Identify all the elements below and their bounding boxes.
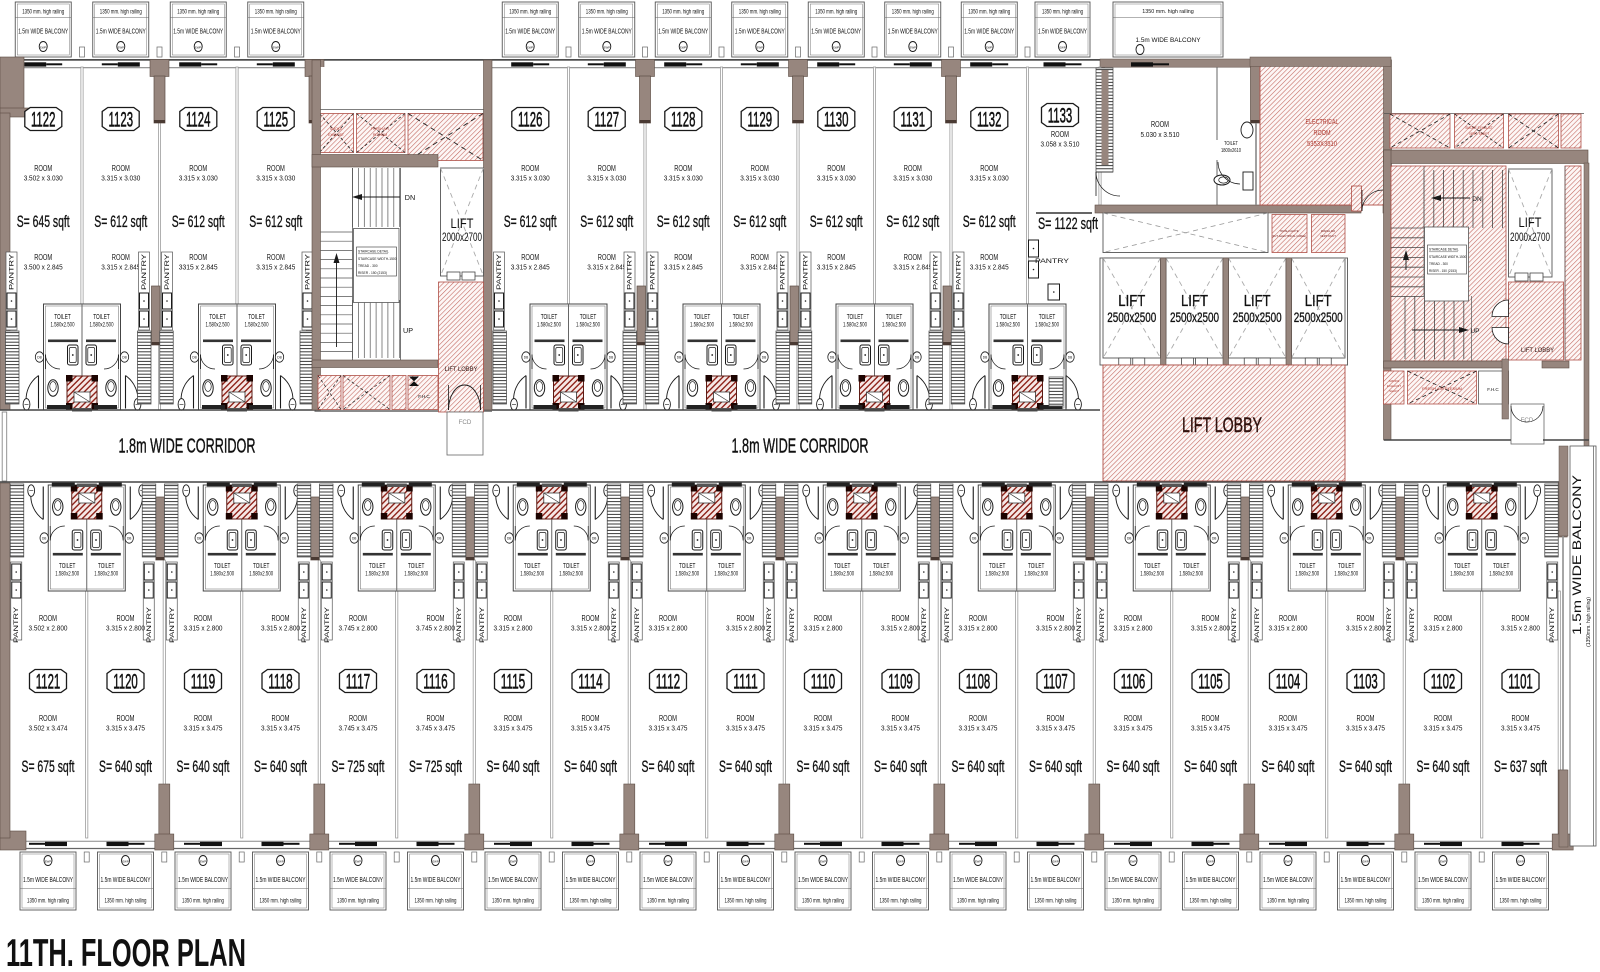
svg-text:ROOM: ROOM [272, 713, 290, 723]
svg-text:S= 640 sqft: S= 640 sqft [1107, 758, 1160, 776]
svg-text:1.580x2.500: 1.580x2.500 [210, 572, 234, 578]
svg-text:1108: 1108 [966, 670, 991, 693]
svg-text:STAIRCASE DETAIL: STAIRCASE DETAIL [358, 250, 389, 254]
svg-text:3.315 x 3.475: 3.315 x 3.475 [1501, 724, 1540, 733]
svg-text:LIFT: LIFT [1181, 293, 1208, 310]
svg-text:1.580x2.500: 1.580x2.500 [830, 572, 854, 578]
svg-text:1.5m WIDE BALCONY: 1.5m WIDE BALCONY [1038, 27, 1087, 36]
svg-text:1350 mm. high railing: 1350 mm. high railing [1142, 9, 1194, 15]
svg-text:PANTRY: PANTRY [780, 253, 787, 290]
svg-text:5.030 x 3.510: 5.030 x 3.510 [1141, 130, 1180, 139]
svg-text:1800x2610: 1800x2610 [1221, 148, 1241, 154]
svg-text:EWP: EWP [1285, 860, 1292, 864]
svg-text:3.315 x 3.475: 3.315 x 3.475 [1424, 724, 1463, 733]
svg-text:3.315 x 2.800: 3.315 x 2.800 [1269, 624, 1308, 633]
svg-text:TOILET: TOILET [93, 314, 110, 321]
svg-text:1105: 1105 [1198, 670, 1223, 693]
svg-text:3.500 x 2.845: 3.500 x 2.845 [24, 263, 63, 272]
svg-text:TOILET: TOILET [1000, 314, 1017, 321]
svg-text:3.315 x 3.475: 3.315 x 3.475 [1114, 724, 1153, 733]
svg-text:1102: 1102 [1431, 670, 1456, 693]
svg-text:ROOM: ROOM [521, 163, 539, 173]
svg-text:1.580x2.500: 1.580x2.500 [869, 572, 893, 578]
svg-text:3.315 x 3.475: 3.315 x 3.475 [494, 724, 533, 733]
svg-text:1350 mm. high railing: 1350 mm. high railing [725, 898, 767, 905]
svg-text:1.580x2.500: 1.580x2.500 [404, 572, 428, 578]
svg-text:PANTRY: PANTRY [1076, 606, 1083, 643]
svg-text:EWP: EWP [820, 860, 827, 864]
svg-text:1.5m WIDE BALCONY: 1.5m WIDE BALCONY [964, 27, 1014, 36]
svg-text:3.315 x 2.800: 3.315 x 2.800 [1114, 624, 1153, 633]
svg-text:TOILET: TOILET [694, 314, 711, 321]
svg-text:FRESH AIR PLENUM: FRESH AIR PLENUM [1422, 387, 1462, 391]
svg-text:LIFT: LIFT [1519, 215, 1542, 230]
svg-text:DB: DB [1282, 537, 1286, 541]
svg-text:1.580x2.500: 1.580x2.500 [882, 323, 906, 329]
svg-text:S= 612 sqft: S= 612 sqft [94, 213, 147, 231]
svg-text:1.5m WIDE BALCONY: 1.5m WIDE BALCONY [1572, 475, 1584, 635]
svg-text:TOILET: TOILET [886, 314, 903, 321]
svg-text:ROOM: ROOM [189, 163, 207, 173]
svg-text:S= 640 sqft: S= 640 sqft [1262, 758, 1315, 776]
svg-text:EWP: EWP [897, 860, 904, 864]
svg-text:1128: 1128 [671, 108, 696, 131]
svg-text:1.580x2.500: 1.580x2.500 [249, 572, 273, 578]
svg-text:STAIRCASE DETAIL: STAIRCASE DETAIL [1429, 248, 1459, 252]
svg-text:1121: 1121 [36, 670, 61, 693]
svg-text:EWP: EWP [355, 860, 362, 864]
svg-text:SMOKE: SMOKE [1389, 379, 1400, 383]
svg-text:TOILET: TOILET [989, 563, 1006, 570]
svg-text:EWP: EWP [1517, 860, 1524, 864]
svg-text:3.315 x 3.475: 3.315 x 3.475 [184, 724, 223, 733]
svg-text:1.580x2.500: 1.580x2.500 [843, 323, 867, 329]
svg-text:LIFT: LIFT [1118, 293, 1145, 310]
svg-text:S= 612 sqft: S= 612 sqft [657, 213, 710, 231]
svg-text:3.315 x 2.845: 3.315 x 2.845 [511, 263, 550, 272]
svg-text:S= 640 sqft: S= 640 sqft [874, 758, 927, 776]
svg-text:3.315 x 3.030: 3.315 x 3.030 [511, 174, 550, 183]
svg-text:DB: DB [747, 537, 751, 541]
svg-text:ROOM: ROOM [751, 163, 769, 173]
svg-text:3.315 x 3.475: 3.315 x 3.475 [1191, 724, 1230, 733]
svg-text:3.315 x 3.030: 3.315 x 3.030 [664, 174, 703, 183]
svg-text:TOILET: TOILET [369, 563, 386, 570]
svg-text:S= 640 sqft: S= 640 sqft [1184, 758, 1237, 776]
svg-text:(FUT. ELECTRICAL CABLE): (FUT. ELECTRICAL CABLE) [1272, 234, 1306, 238]
svg-text:TOILET: TOILET [1039, 314, 1056, 321]
svg-text:PANTRY: PANTRY [1099, 606, 1106, 643]
svg-text:ROOM: ROOM [194, 613, 212, 623]
svg-text:1350 mm. high railing: 1350 mm. high railing [586, 9, 628, 16]
svg-text:3.315 x 2.845: 3.315 x 2.845 [970, 263, 1009, 272]
svg-text:1350 mm. high railing: 1350 mm. high railing [492, 898, 534, 905]
svg-text:TREAD - 300: TREAD - 300 [1429, 262, 1448, 266]
svg-text:3.315 x 3.475: 3.315 x 3.475 [1269, 724, 1308, 733]
svg-text:ROOM: ROOM [659, 713, 677, 723]
svg-text:3.315 x 2.800: 3.315 x 2.800 [106, 624, 145, 633]
svg-text:1350 mm. high railing: 1350 mm. high railing [957, 898, 999, 905]
svg-text:1.5m WIDE BALCONY: 1.5m WIDE BALCONY [1136, 37, 1202, 44]
svg-text:3.315 x 2.845: 3.315 x 2.845 [256, 263, 295, 272]
svg-text:1350 mm. high railing: 1350 mm. high railing [509, 9, 551, 16]
svg-text:DN: DN [1472, 196, 1482, 203]
svg-text:ROOM: ROOM [194, 713, 212, 723]
svg-text:EWP: EWP [986, 46, 993, 50]
svg-text:TOILET: TOILET [1224, 141, 1238, 147]
svg-text:ROOM: ROOM [117, 713, 135, 723]
svg-text:1.580x2.500: 1.580x2.500 [51, 323, 75, 329]
svg-text:DB: DB [817, 537, 821, 541]
svg-text:3.315 x 3.475: 3.315 x 3.475 [804, 724, 843, 733]
svg-text:TOILET: TOILET [1493, 563, 1510, 570]
svg-text:ROOM: ROOM [349, 613, 367, 623]
svg-text:3.315 x 3.030: 3.315 x 3.030 [101, 174, 140, 183]
svg-text:TOILET: TOILET [1028, 563, 1045, 570]
svg-text:S= 725 sqft: S= 725 sqft [409, 758, 462, 776]
svg-text:3.315 x 2.800: 3.315 x 2.800 [1036, 624, 1075, 633]
svg-text:3.745 x 3.475: 3.745 x 3.475 [416, 724, 455, 733]
svg-text:FCD: FCD [1521, 417, 1534, 424]
svg-text:1350 mm. high railing: 1350 mm. high railing [647, 898, 689, 905]
svg-text:DB: DB [277, 356, 281, 360]
svg-text:LIFT LOBBY: LIFT LOBBY [1521, 347, 1555, 354]
svg-text:S= 640 sqft: S= 640 sqft [177, 758, 230, 776]
svg-text:EWP: EWP [118, 46, 125, 50]
svg-text:ROOM: ROOM [1314, 128, 1331, 137]
svg-text:1104: 1104 [1276, 670, 1301, 693]
svg-text:3.315 x 2.800: 3.315 x 2.800 [1346, 624, 1385, 633]
svg-text:ROOM: ROOM [827, 163, 845, 173]
svg-text:ROOM: ROOM [189, 252, 207, 262]
svg-text:3.315 x 3.475: 3.315 x 3.475 [726, 724, 765, 733]
svg-text:3.315 x 2.800: 3.315 x 2.800 [1191, 624, 1230, 633]
svg-text:STAIRCASE WIDTH-1500: STAIRCASE WIDTH-1500 [1429, 255, 1467, 259]
svg-text:PANTRY: PANTRY [803, 253, 810, 290]
svg-text:ROOM: ROOM [1124, 613, 1142, 623]
svg-text:1.5m WIDE BALCONY: 1.5m WIDE BALCONY [333, 875, 383, 884]
svg-text:1133: 1133 [1048, 104, 1073, 127]
svg-text:S= 612 sqft: S= 612 sqft [580, 213, 633, 231]
svg-text:EWP: EWP [1207, 860, 1214, 864]
svg-text:DB: DB [609, 356, 613, 360]
svg-text:ROOM: ROOM [1434, 713, 1452, 723]
svg-text:1125: 1125 [264, 108, 289, 131]
svg-text:EWP: EWP [665, 860, 672, 864]
svg-text:2500x2500: 2500x2500 [1294, 309, 1343, 325]
svg-text:PANTRY: PANTRY [650, 253, 657, 290]
svg-text:1.580x2.500: 1.580x2.500 [576, 323, 600, 329]
svg-text:1350 mm. high railing: 1350 mm. high railing [662, 9, 704, 16]
svg-text:EWP: EWP [742, 860, 749, 864]
svg-text:ROOM: ROOM [1124, 713, 1142, 723]
svg-text:3.745 x 2.800: 3.745 x 2.800 [339, 624, 378, 633]
svg-text:1350 mm. high railing: 1350 mm. high railing [739, 9, 781, 16]
svg-text:EWP: EWP [1130, 860, 1137, 864]
svg-text:RISER - 150 (2153): RISER - 150 (2153) [1429, 269, 1457, 273]
svg-text:EWP: EWP [45, 860, 52, 864]
svg-text:TOILET: TOILET [214, 563, 231, 570]
svg-text:S= 640 sqft: S= 640 sqft [952, 758, 1005, 776]
svg-text:ROOM: ROOM [969, 713, 987, 723]
svg-text:1.5m WIDE BALCONY: 1.5m WIDE BALCONY [178, 875, 228, 884]
svg-text:LIFT: LIFT [451, 216, 474, 231]
svg-text:1.5m WIDE BALCONY: 1.5m WIDE BALCONY [18, 27, 68, 36]
svg-text:ROOM: ROOM [1051, 129, 1069, 139]
svg-text:1350 mm. high railing: 1350 mm. high railing [182, 898, 224, 905]
svg-text:DB: DB [972, 537, 976, 541]
svg-text:TOILET: TOILET [54, 314, 71, 321]
svg-text:S= 1122 sqft: S= 1122 sqft [1038, 215, 1098, 233]
svg-text:1350 mm. high railing: 1350 mm. high railing [1267, 898, 1309, 905]
svg-text:ROOM: ROOM [117, 613, 135, 623]
svg-text:ROOM: ROOM [1047, 713, 1065, 723]
svg-text:3.315 x 2.800: 3.315 x 2.800 [261, 624, 300, 633]
svg-text:EWP: EWP [510, 860, 517, 864]
svg-text:DB: DB [762, 356, 766, 360]
svg-text:ROOM: ROOM [1202, 713, 1220, 723]
svg-text:ROOM: ROOM [112, 163, 130, 173]
svg-text:1.5m WIDE BALCONY: 1.5m WIDE BALCONY [488, 875, 538, 884]
svg-text:EWP: EWP [195, 46, 202, 50]
svg-text:DB: DB [437, 537, 441, 541]
svg-text:ROOM: ROOM [751, 252, 769, 262]
svg-text:1132: 1132 [977, 108, 1002, 131]
svg-text:S= 640 sqft: S= 640 sqft [1339, 758, 1392, 776]
svg-text:1350 mm. high railing: 1350 mm. high railing [22, 9, 64, 16]
svg-text:1.5m WIDE BALCONY: 1.5m WIDE BALCONY [1496, 875, 1546, 884]
svg-text:ROOM: ROOM [737, 713, 755, 723]
svg-text:TOILET: TOILET [679, 563, 696, 570]
svg-text:3.058 x 3.510: 3.058 x 3.510 [1041, 140, 1080, 149]
svg-text:1350 mm. high railing: 1350 mm. high railing [100, 9, 142, 16]
svg-text:PANTRY: PANTRY [956, 253, 963, 290]
svg-text:TREAD - 300: TREAD - 300 [358, 264, 378, 268]
svg-text:1.580x2.500: 1.580x2.500 [245, 323, 269, 329]
svg-text:EWP: EWP [432, 860, 439, 864]
svg-text:1.580x2.500: 1.580x2.500 [94, 572, 118, 578]
svg-text:ROOM: ROOM [34, 163, 52, 173]
svg-text:DB: DB [122, 356, 126, 360]
svg-text:1.580x2.500: 1.580x2.500 [985, 572, 1009, 578]
svg-text:DB: DB [1057, 537, 1061, 541]
svg-text:1129: 1129 [748, 108, 773, 131]
svg-text:F.H.C: F.H.C [1487, 387, 1499, 392]
svg-text:3.315 x 3.030: 3.315 x 3.030 [256, 174, 295, 183]
svg-text:3.315 x 3.030: 3.315 x 3.030 [817, 174, 856, 183]
svg-text:1.5m WIDE BALCONY: 1.5m WIDE BALCONY [735, 27, 785, 36]
svg-text:1119: 1119 [191, 670, 216, 693]
svg-text:ROOM: ROOM [267, 252, 285, 262]
svg-text:1126: 1126 [518, 108, 543, 131]
svg-text:ROOM: ROOM [427, 713, 445, 723]
svg-text:DB: DB [197, 537, 201, 541]
svg-text:3.315 x 3.030: 3.315 x 3.030 [179, 174, 218, 183]
svg-text:EWP: EWP [587, 860, 594, 864]
svg-text:S= 640 sqft: S= 640 sqft [642, 758, 695, 776]
svg-text:3.315 x 2.845: 3.315 x 2.845 [893, 263, 932, 272]
svg-text:ROOM: ROOM [674, 252, 692, 262]
svg-text:TOILET: TOILET [541, 314, 558, 321]
svg-text:3.315 x 2.845: 3.315 x 2.845 [664, 263, 703, 272]
svg-text:1131: 1131 [901, 108, 926, 131]
svg-text:S= 640 sqft: S= 640 sqft [254, 758, 307, 776]
svg-text:TOILET: TOILET [1183, 563, 1200, 570]
svg-text:1111: 1111 [733, 670, 758, 693]
svg-text:1116: 1116 [423, 670, 448, 693]
svg-text:EWP: EWP [40, 46, 47, 50]
svg-text:TOILET: TOILET [718, 563, 735, 570]
svg-text:1.8m WIDE CORRIDOR: 1.8m WIDE CORRIDOR [732, 436, 869, 458]
svg-text:ROOM: ROOM [504, 613, 522, 623]
svg-text:DB: DB [902, 537, 906, 541]
svg-text:EWP: EWP [1052, 860, 1059, 864]
svg-text:1115: 1115 [501, 670, 526, 693]
svg-text:1.580x2.500: 1.580x2.500 [1295, 572, 1319, 578]
svg-text:1.580x2.500: 1.580x2.500 [1140, 572, 1164, 578]
svg-text:ROOM: ROOM [1357, 713, 1375, 723]
svg-text:3.315 x 2.845: 3.315 x 2.845 [817, 263, 856, 272]
svg-text:PANTRY: PANTRY [324, 606, 331, 643]
svg-text:EWP: EWP [277, 860, 284, 864]
svg-text:3.315 x 3.475: 3.315 x 3.475 [571, 724, 610, 733]
svg-text:1103: 1103 [1353, 670, 1378, 693]
svg-text:S= 675 sqft: S= 675 sqft [22, 758, 75, 776]
svg-text:ROOM: ROOM [980, 163, 998, 173]
svg-text:EWP: EWP [200, 860, 207, 864]
svg-text:S= 640 sqft: S= 640 sqft [564, 758, 617, 776]
svg-text:DB: DB [1437, 537, 1441, 541]
svg-text:1350 mm. high railing: 1350 mm. high railing [1422, 898, 1464, 905]
svg-text:DB: DB [524, 356, 528, 360]
svg-text:ROOM: ROOM [582, 713, 600, 723]
svg-text:3.315 x 3.030: 3.315 x 3.030 [740, 174, 779, 183]
svg-text:DB: DB [37, 356, 41, 360]
svg-text:EWP: EWP [122, 860, 129, 864]
svg-text:PANTRY: PANTRY [146, 606, 153, 643]
svg-text:1350 mm. high railing: 1350 mm. high railing [1035, 898, 1077, 905]
svg-text:TOILET: TOILET [408, 563, 425, 570]
svg-text:SMOKE: SMOKE [330, 127, 343, 131]
svg-text:1350 mm. high railing: 1350 mm. high railing [177, 9, 219, 16]
svg-text:PANTRY: PANTRY [789, 606, 796, 643]
svg-text:1.8m WIDE CORRIDOR: 1.8m WIDE CORRIDOR [119, 436, 256, 458]
svg-text:PANTRY: PANTRY [9, 253, 16, 290]
svg-text:EWP: EWP [273, 46, 280, 50]
svg-text:1.5m WIDE BALCONY: 1.5m WIDE BALCONY [1108, 875, 1158, 884]
svg-text:5353X3510: 5353X3510 [1307, 141, 1337, 148]
svg-text:1350 mm. high railing: 1350 mm. high railing [27, 898, 69, 905]
svg-text:1101: 1101 [1508, 670, 1533, 693]
svg-text:3.745 x 2.800: 3.745 x 2.800 [416, 624, 455, 633]
svg-text:TOILET: TOILET [1299, 563, 1316, 570]
svg-text:1.580x2.500: 1.580x2.500 [714, 572, 738, 578]
svg-text:EWP: EWP [975, 860, 982, 864]
svg-text:1.5m WIDE BALCONY: 1.5m WIDE BALCONY [582, 27, 632, 36]
svg-text:EWP: EWP [910, 46, 917, 50]
svg-text:PANTRY: PANTRY [301, 606, 308, 643]
svg-text:1.580x2.500: 1.580x2.500 [206, 323, 230, 329]
svg-text:STAIRCASE WIDTH-1500: STAIRCASE WIDTH-1500 [358, 257, 397, 261]
svg-text:ROOM: ROOM [969, 613, 987, 623]
svg-text:PANTRY: PANTRY [169, 606, 176, 643]
svg-text:S= 612 sqft: S= 612 sqft [733, 213, 786, 231]
svg-text:2500x2500: 2500x2500 [1233, 309, 1282, 325]
svg-text:ROOM: ROOM [598, 252, 616, 262]
svg-text:1.5m WIDE BALCONY: 1.5m WIDE BALCONY [96, 27, 146, 36]
svg-text:DB: DB [1367, 537, 1371, 541]
svg-text:1109: 1109 [888, 670, 913, 693]
svg-text:ROOM: ROOM [904, 252, 922, 262]
svg-text:ROOM: ROOM [1512, 713, 1530, 723]
svg-text:LIFT: LIFT [1244, 293, 1271, 310]
svg-text:ROOM: ROOM [1279, 613, 1297, 623]
svg-text:DB: DB [1522, 537, 1526, 541]
svg-text:3.745 x 3.475: 3.745 x 3.475 [339, 724, 378, 733]
svg-text:1.580x2.500: 1.580x2.500 [1024, 572, 1048, 578]
svg-text:1.5m WIDE BALCONY: 1.5m WIDE BALCONY [251, 27, 301, 36]
svg-text:DB: DB [1127, 537, 1131, 541]
svg-text:FRESH AIR: FRESH AIR [1321, 229, 1335, 233]
svg-text:1.580x2.500: 1.580x2.500 [675, 572, 699, 578]
svg-text:3.315 x 2.800: 3.315 x 2.800 [1501, 624, 1540, 633]
svg-text:1350 mm. high railing: 1350 mm. high railing [337, 898, 379, 905]
svg-text:ROOM: ROOM [674, 163, 692, 173]
svg-text:DB: DB [677, 356, 681, 360]
svg-text:1350 mm. high railing: 1350 mm. high railing [880, 898, 922, 905]
svg-text:DB: DB [282, 537, 286, 541]
svg-text:VERT. SHAFT: VERT. SHAFT [1469, 132, 1489, 136]
svg-text:3.315 x 3.475: 3.315 x 3.475 [261, 724, 300, 733]
svg-text:S= 640 sqft: S= 640 sqft [1029, 758, 1082, 776]
svg-text:ROOM: ROOM [39, 713, 57, 723]
svg-text:1.5m WIDE BALCONY: 1.5m WIDE BALCONY [953, 875, 1003, 884]
svg-text:LIFT LOBBY: LIFT LOBBY [1182, 414, 1262, 437]
svg-text:ROOM: ROOM [349, 713, 367, 723]
svg-text:PLENUM: PLENUM [373, 133, 387, 137]
svg-text:UP: UP [1470, 328, 1480, 335]
svg-text:1120: 1120 [113, 670, 138, 693]
svg-text:ROOM: ROOM [39, 613, 57, 623]
svg-text:TOILET: TOILET [1454, 563, 1471, 570]
svg-text:DB: DB [127, 537, 131, 541]
svg-text:3.315 x 2.800: 3.315 x 2.800 [881, 624, 920, 633]
svg-text:PANTRY: PANTRY [944, 606, 951, 643]
svg-text:VERT. DUCT: VERT. DUCT [1320, 234, 1336, 238]
svg-text:RISER - 150 (2153): RISER - 150 (2153) [358, 271, 387, 275]
svg-text:EXHAUST: EXHAUST [328, 133, 344, 137]
svg-text:TOILET: TOILET [59, 563, 76, 570]
svg-text:TOILET: TOILET [1338, 563, 1355, 570]
svg-text:ROOM: ROOM [521, 252, 539, 262]
svg-text:1.5m WIDE BALCONY: 1.5m WIDE BALCONY [721, 875, 771, 884]
svg-text:S= 640 sqft: S= 640 sqft [1417, 758, 1470, 776]
svg-text:3.315 x 2.800: 3.315 x 2.800 [571, 624, 610, 633]
svg-text:3.315 x 3.475: 3.315 x 3.475 [1346, 724, 1385, 733]
svg-text:SMOKE EXHAUST: SMOKE EXHAUST [1465, 126, 1493, 130]
svg-text:1.5m WIDE BALCONY: 1.5m WIDE BALCONY [811, 27, 861, 36]
svg-text:3.502 x 2.800: 3.502 x 2.800 [29, 624, 68, 633]
svg-text:2000x2700: 2000x2700 [442, 230, 482, 244]
svg-text:DB: DB [42, 537, 46, 541]
svg-text:PANTRY: PANTRY [496, 253, 503, 290]
svg-text:PANTRY: PANTRY [141, 253, 148, 290]
svg-text:TOILET: TOILET [733, 314, 750, 321]
svg-text:1350 mm. high railing: 1350 mm. high railing [1190, 898, 1232, 905]
svg-text:1.580x2.500: 1.580x2.500 [1035, 323, 1059, 329]
svg-text:1.580x2.500: 1.580x2.500 [1334, 572, 1358, 578]
svg-text:3.315 x 3.475: 3.315 x 3.475 [881, 724, 920, 733]
